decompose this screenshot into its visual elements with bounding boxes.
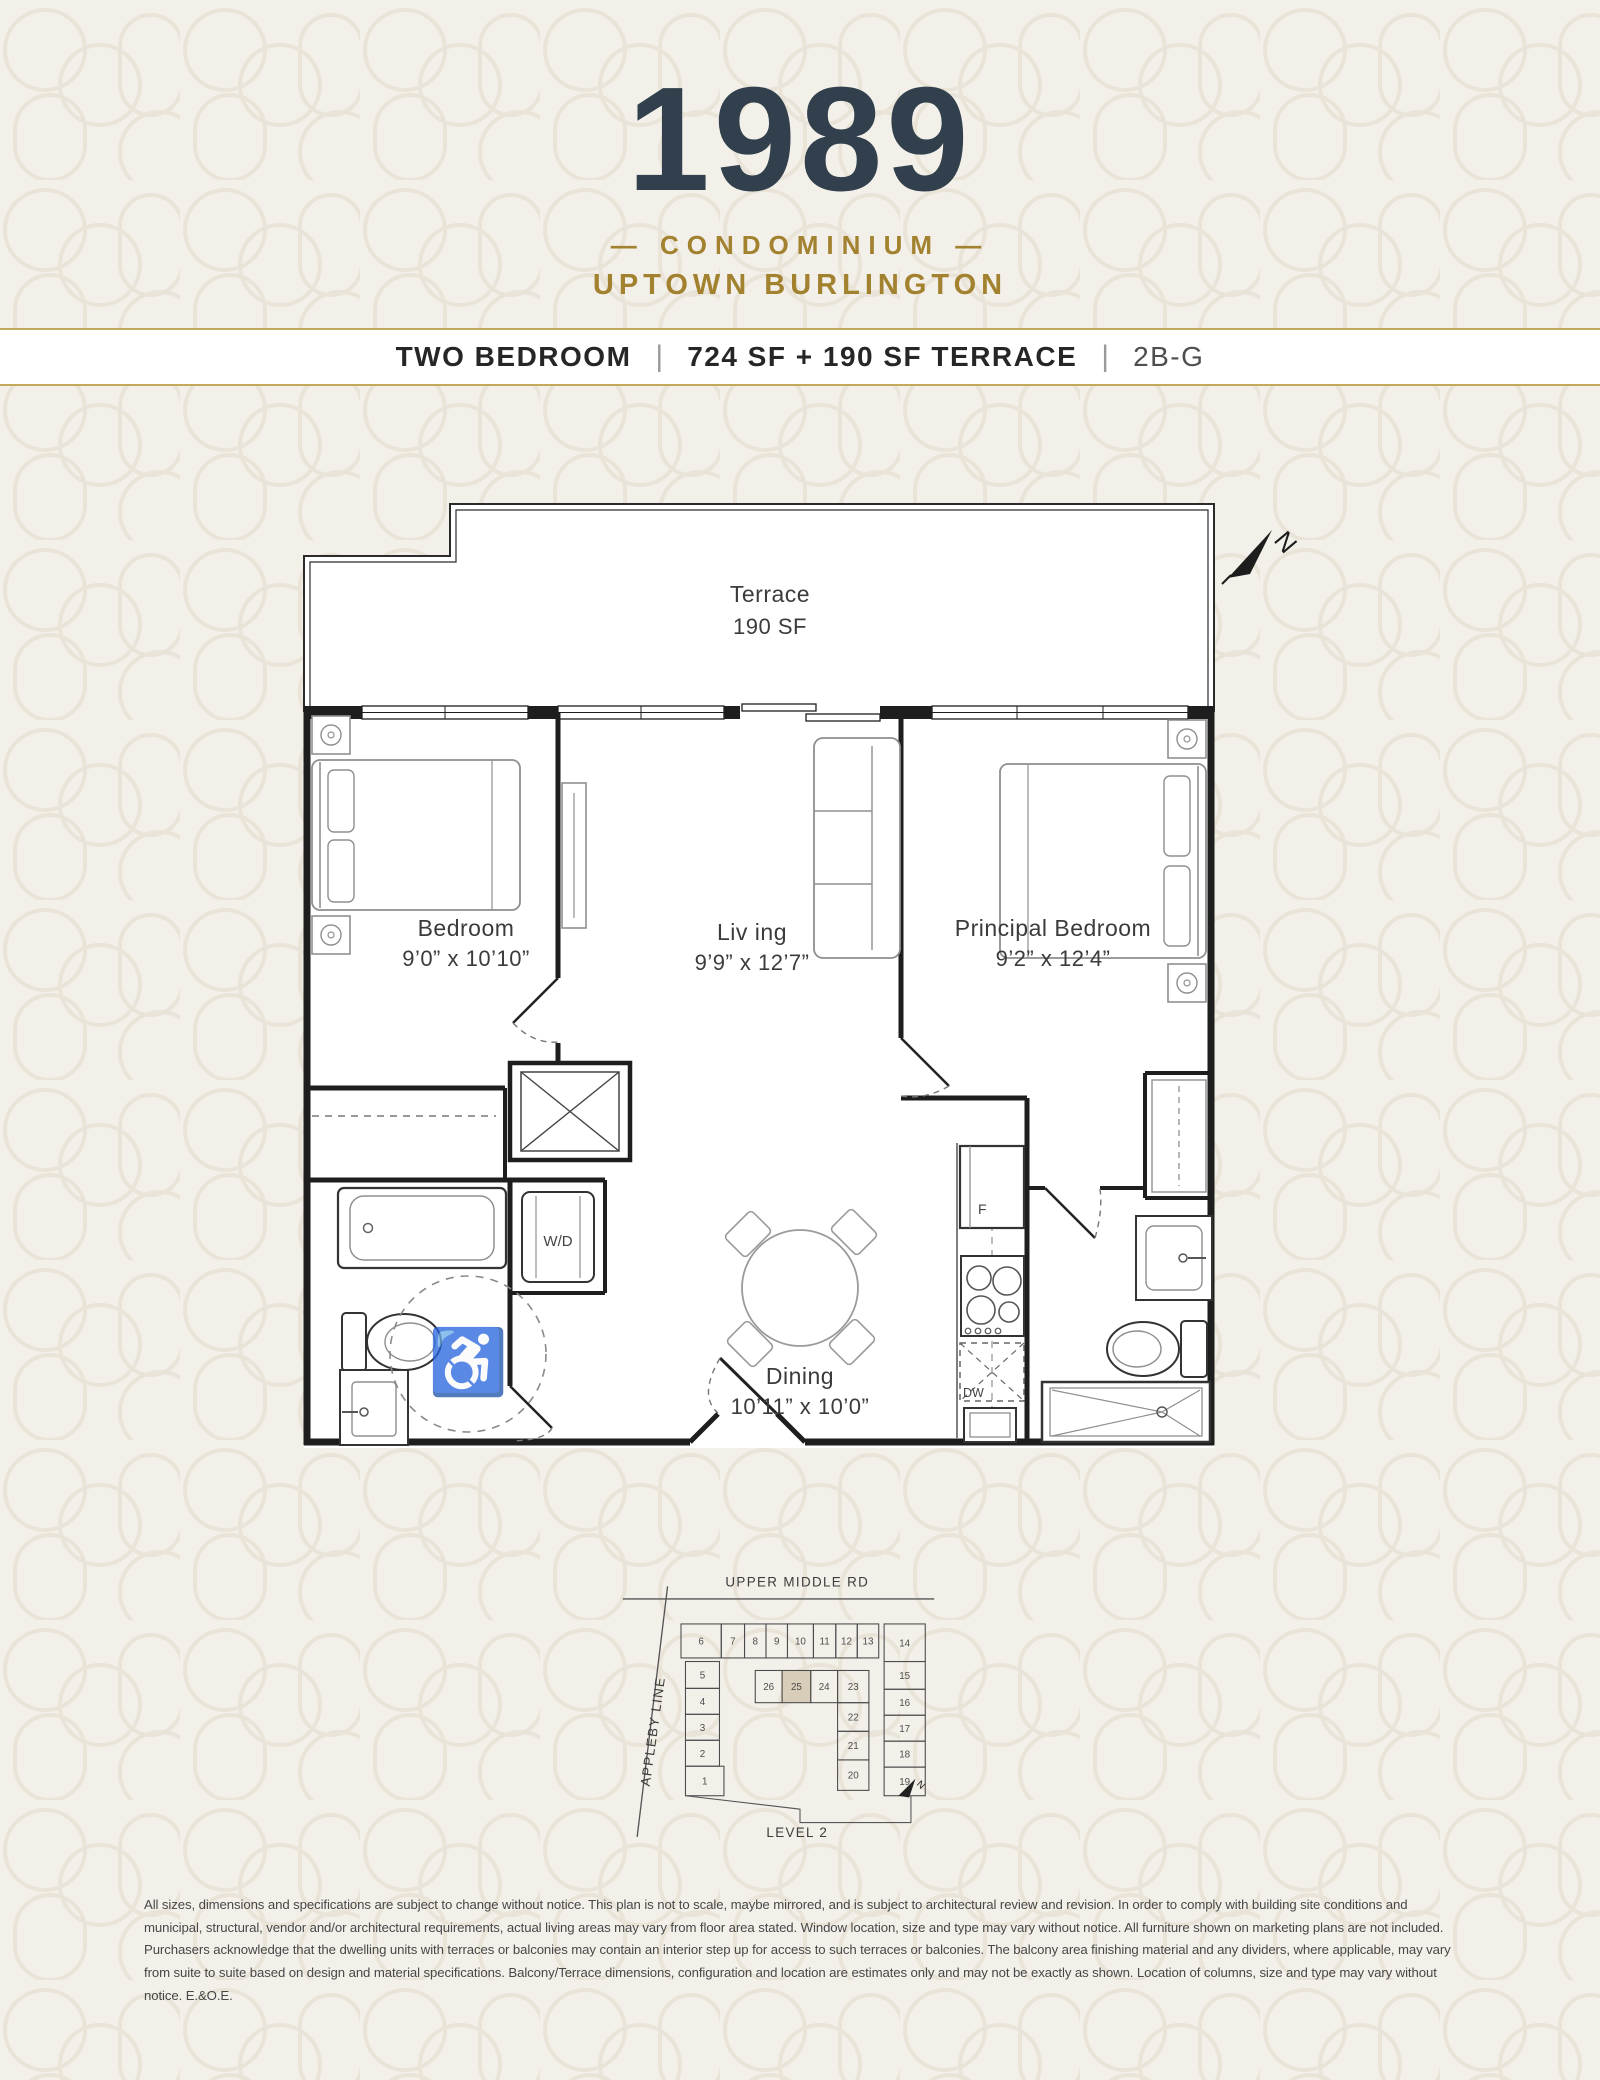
keyplan-unit-number: 18 <box>899 1750 910 1761</box>
nightstand <box>1168 720 1206 758</box>
keyplan-unit-number: 3 <box>700 1723 706 1734</box>
brand-tagline-location: UPTOWN BURLINGTON <box>0 269 1600 302</box>
north-label: N <box>1268 525 1300 559</box>
washer-dryer-label: W/D <box>543 1233 572 1250</box>
dining-dimensions: 10’11” x 10’0” <box>731 1394 870 1419</box>
plan-type: TWO BEDROOM <box>396 341 632 373</box>
terrace: Terrace 190 SF <box>304 504 1214 712</box>
nightstand <box>312 716 350 754</box>
keyplan-unit-number: 12 <box>841 1637 852 1648</box>
terrace-area: 190 SF <box>733 614 807 639</box>
road-appleby: APPLEBY LINE <box>638 1676 668 1788</box>
keyplan-unit-number: 8 <box>753 1637 759 1648</box>
keyplan-unit-number: 9 <box>774 1637 779 1648</box>
fridge-label: F <box>978 1201 987 1217</box>
ensuite-toilet <box>1181 1321 1207 1377</box>
dining-furniture <box>724 1208 878 1368</box>
keyplan-unit-number: 1 <box>702 1777 707 1788</box>
title-separator: | <box>655 340 663 374</box>
keyplan-unit-number: 15 <box>899 1671 910 1682</box>
north-arrow-icon: N <box>1222 525 1300 584</box>
level-label: LEVEL 2 <box>766 1825 828 1839</box>
keyplan-unit-number: 4 <box>700 1697 706 1708</box>
dining-table <box>742 1230 858 1346</box>
plan-title-bar: TWO BEDROOM | 724 SF + 190 SF TERRACE | … <box>0 328 1600 386</box>
keyplan-unit-number: 5 <box>700 1671 706 1682</box>
washer-dryer: W/D <box>522 1192 594 1282</box>
keyplan-unit-number: 11 <box>820 1637 830 1648</box>
keyplan-unit-number: 10 <box>795 1637 806 1648</box>
keyplan-unit-number: 23 <box>848 1682 859 1693</box>
road-upper-middle: UPPER MIDDLE RD <box>725 1574 869 1589</box>
keyplan-unit-number: 25 <box>791 1682 802 1693</box>
keyplan-unit-number: 20 <box>848 1771 859 1782</box>
terrace-door <box>740 702 880 723</box>
dishwasher-label: DW <box>963 1386 984 1400</box>
cooktop <box>961 1256 1024 1336</box>
keyplan-unit-number: 16 <box>899 1698 910 1709</box>
principal-bedroom-label: Principal Bedroom <box>955 915 1151 941</box>
bedroom-dimensions: 9’0” x 10’10” <box>402 946 530 971</box>
keyplan-unit-number: 6 <box>698 1637 704 1648</box>
bedroom-label: Bedroom <box>418 915 515 941</box>
living-furniture <box>814 738 900 958</box>
keyplan-unit-number: 13 <box>863 1637 874 1648</box>
keyplan-unit-number: 26 <box>763 1682 774 1693</box>
terrace-label: Terrace <box>730 581 810 607</box>
toilet <box>342 1313 366 1371</box>
keyplan-unit-number: 2 <box>700 1749 705 1760</box>
floorplan-page: 1989 — CONDOMINIUM — UPTOWN BURLINGTON T… <box>0 0 1600 2080</box>
shaft-box <box>510 1063 630 1160</box>
key-plan: UPPER MIDDLE RD APPLEBY LINE 67891011121… <box>596 1561 936 1839</box>
podium-outline <box>685 1796 910 1823</box>
keyplan-unit-number: 22 <box>848 1713 859 1724</box>
header: 1989 — CONDOMINIUM — UPTOWN BURLINGTON <box>0 0 1600 302</box>
bed <box>312 760 520 910</box>
principal-bedroom-dimensions: 9’2” x 12’4” <box>996 946 1111 971</box>
unit-code: 2B-G <box>1133 341 1204 373</box>
keyplan-unit-number: 24 <box>819 1682 830 1693</box>
keyplan-unit-number: 7 <box>730 1637 735 1648</box>
title-separator: | <box>1101 340 1109 374</box>
keyplan-unit-number: 17 <box>899 1724 910 1735</box>
keyplan-units: 6789101112131415161718195432126252423222… <box>681 1624 925 1796</box>
nightstand <box>312 916 350 954</box>
floor-plan: N Terrace 190 SF <box>300 498 1300 1478</box>
keyplan-unit-number: 14 <box>899 1638 910 1649</box>
plan-area: 724 SF + 190 SF TERRACE <box>687 341 1077 373</box>
brand-logo: 1989 <box>0 66 1600 214</box>
disclaimer-text: All sizes, dimensions and specifications… <box>144 1894 1456 2008</box>
living-dimensions: 9’9” x 12’7” <box>695 950 810 975</box>
living-label: Liv ing <box>717 919 787 945</box>
sofa <box>814 738 900 958</box>
dining-label: Dining <box>766 1363 834 1389</box>
vanity-sink <box>340 1370 408 1445</box>
wheelchair-icon: ♿ <box>428 1326 508 1398</box>
brand-tagline-condominium: — CONDOMINIUM — <box>0 230 1600 261</box>
nightstand <box>1168 964 1206 1002</box>
keyplan-unit-number: 21 <box>848 1741 859 1752</box>
